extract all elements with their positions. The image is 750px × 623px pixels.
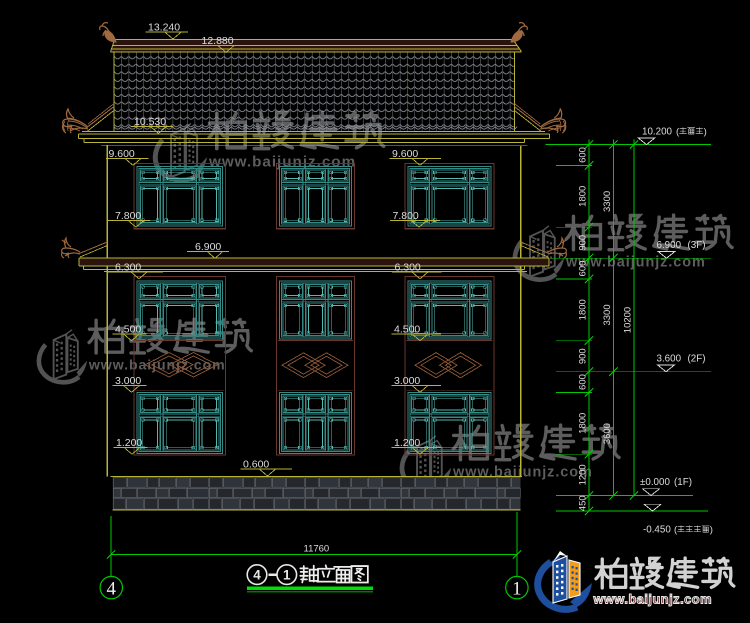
svg-text:4: 4	[107, 579, 117, 600]
svg-text:1800: 1800	[578, 413, 589, 434]
svg-text:1: 1	[512, 579, 522, 600]
svg-text:www.baijunjz.com: www.baijunjz.com	[593, 591, 712, 606]
svg-text:1800: 1800	[578, 299, 589, 320]
svg-text:3.600: 3.600	[657, 353, 682, 364]
svg-text:-0.450: -0.450	[643, 525, 671, 536]
svg-text:1: 1	[283, 568, 291, 583]
svg-text:600: 600	[578, 147, 589, 163]
svg-text:(3F): (3F)	[688, 240, 706, 251]
svg-text:(1F): (1F)	[674, 477, 692, 488]
svg-text:10.200: 10.200	[642, 126, 673, 137]
svg-text:4: 4	[253, 568, 261, 583]
svg-text:1800: 1800	[578, 186, 589, 207]
svg-text:): )	[710, 525, 713, 536]
svg-text:±0.000: ±0.000	[640, 477, 670, 488]
svg-text:3300: 3300	[602, 191, 613, 212]
svg-text:1200: 1200	[578, 464, 589, 485]
svg-text:): )	[704, 126, 707, 137]
svg-text:3600: 3600	[602, 423, 613, 444]
svg-text:11760: 11760	[304, 544, 330, 555]
svg-text:www.baijunjz.com: www.baijunjz.com	[208, 154, 356, 171]
svg-text:450: 450	[578, 495, 589, 511]
svg-text:6.900: 6.900	[657, 240, 682, 251]
svg-text:10200: 10200	[623, 307, 634, 333]
svg-text:(2F): (2F)	[688, 353, 706, 364]
svg-text:600: 600	[578, 261, 589, 277]
svg-text:900: 900	[578, 235, 589, 251]
svg-text:900: 900	[578, 348, 589, 364]
svg-text:600: 600	[578, 374, 589, 390]
svg-text:3300: 3300	[602, 304, 613, 325]
